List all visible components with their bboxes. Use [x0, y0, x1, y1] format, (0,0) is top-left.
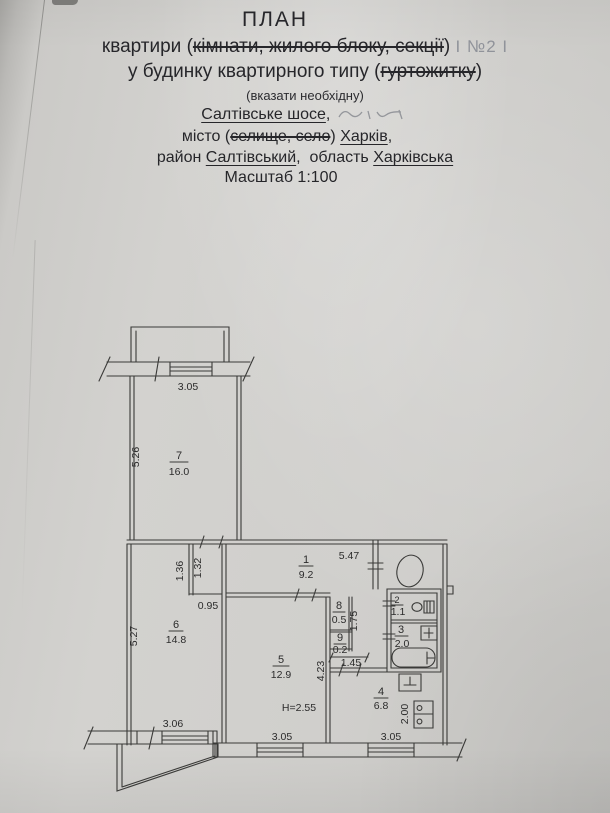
- room6-window: [162, 731, 208, 744]
- bottom-balcony: [117, 744, 218, 791]
- dim-kitchen-window: 3.05: [381, 731, 402, 743]
- room5-window: [257, 743, 303, 757]
- vent-duct: [394, 552, 427, 589]
- top-wall: [107, 362, 250, 376]
- top-balcony-railing: [131, 327, 229, 362]
- room2-area: 1.1: [391, 606, 406, 618]
- room7-right-wall: [237, 376, 241, 540]
- dim-room7-left: 5.26: [130, 447, 142, 468]
- dim-niche-width: 0.95: [198, 600, 219, 612]
- washbasin-icon: [399, 674, 421, 691]
- block-top-wall: [127, 540, 378, 544]
- room1-area: 9.2: [299, 569, 314, 581]
- wc-bath-divider: [391, 620, 437, 623]
- room5-area: 12.9: [271, 669, 292, 681]
- room6-number: 6: [173, 619, 179, 631]
- floor-plan: 7 16.0 3.05 5.26 1 9.2 5.47 1.36 1.32 0.…: [0, 0, 610, 813]
- dim-niche-left: 1.36: [174, 561, 186, 582]
- entrance-door-ticks: [368, 563, 383, 569]
- scanned-floor-plan-page: ПЛАН квартири (кімнати, жилого блоку, се…: [0, 0, 610, 813]
- label-fraction-lines: [169, 462, 408, 698]
- room9-number: 9: [337, 632, 343, 644]
- room3-area: 2.0: [395, 638, 410, 650]
- room4-number: 4: [378, 686, 384, 698]
- dim-niche-right: 1.32: [192, 558, 204, 579]
- room2-number: 2: [394, 595, 399, 605]
- dim-passage: 1.45: [341, 657, 362, 669]
- room7-window: [170, 362, 212, 376]
- dim-stove: 2.00: [399, 704, 411, 725]
- room3-number: 3: [398, 624, 404, 636]
- dim-corridor-top: 5.47: [339, 550, 360, 562]
- stove-icon: [414, 701, 433, 728]
- dim-closet: 1.75: [348, 611, 360, 632]
- room1-number: 1: [303, 554, 309, 566]
- dim-top-window: 3.05: [178, 381, 199, 393]
- room9-area: 0.2: [333, 644, 348, 656]
- dim-room5-window: 3.05: [272, 731, 293, 743]
- room5-number: 5: [278, 654, 284, 666]
- toilet-icon: [412, 603, 422, 612]
- kitchen-window: [368, 743, 414, 757]
- room6-divider-wall: [222, 544, 226, 743]
- plan-labels: 7 16.0 3.05 5.26 1 9.2 5.47 1.36 1.32 0.…: [128, 381, 411, 743]
- room7-area: 16.0: [169, 466, 190, 478]
- niche-wall: [373, 540, 378, 589]
- room7-number: 7: [176, 450, 182, 462]
- bottom-wall-right: [213, 743, 462, 757]
- room4-area: 6.8: [374, 700, 389, 712]
- room7-door-ticks: [200, 536, 223, 548]
- room8-area: 0.5: [332, 614, 347, 626]
- room5-door-ticks: [295, 589, 316, 601]
- room8-number: 8: [336, 600, 342, 612]
- sink-icon: [421, 626, 437, 640]
- ceiling-height: H=2.55: [282, 702, 316, 714]
- room6-area: 14.8: [166, 634, 187, 646]
- dim-room6-window: 3.06: [163, 718, 184, 730]
- dim-room5-depth: 4.23: [315, 661, 327, 682]
- right-outer-wall: [443, 544, 447, 745]
- dim-room6-left: 5.27: [128, 626, 140, 647]
